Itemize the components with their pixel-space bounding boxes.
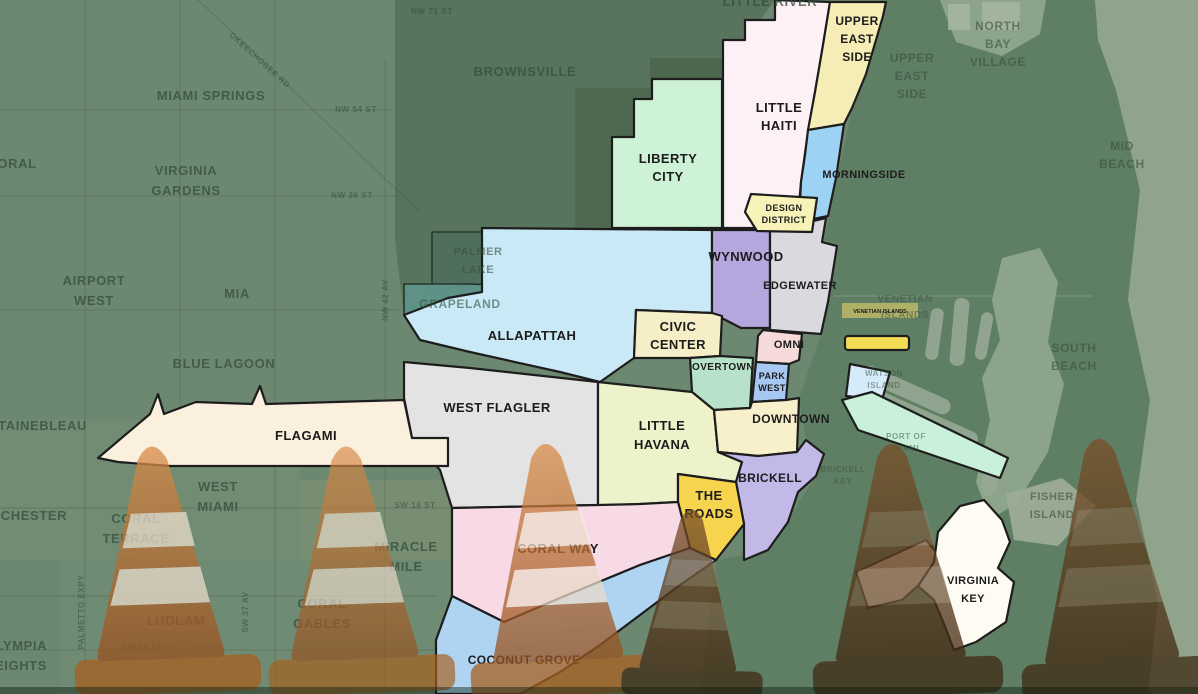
street-nw42av: NW 42 AV	[381, 279, 390, 321]
bg-label-palmer-lake-2: LAKE	[462, 264, 494, 276]
label-liberty-city-2: CITY	[652, 169, 683, 184]
label-virginia-key: VIRGINIA	[947, 575, 999, 587]
bg-label-upper-east-side: UPPER	[890, 51, 934, 65]
bg-label-south-beach: SOUTH	[1052, 341, 1097, 355]
bg-label-north-bay-village-2: BAY	[985, 37, 1011, 51]
bg-label-mid-beach: MID	[1110, 139, 1134, 153]
bottom-edge-shade	[0, 687, 1198, 694]
label-design-district-2: DISTRICT	[762, 215, 807, 225]
bg-label-brickell-key: BRICKELL	[820, 465, 865, 474]
bg-label-west-miami: WEST	[198, 479, 238, 494]
label-morningside: MORNINGSIDE	[822, 169, 905, 181]
nbv-block-1	[948, 4, 970, 30]
bg-label-virginia-gardens: VIRGINIA	[155, 163, 218, 178]
label-upper-east-side: UPPER	[835, 14, 878, 28]
label-little-havana: LITTLE	[639, 418, 685, 433]
bg-label-watson-island: WATSON	[865, 369, 903, 378]
bg-label-mia: MIA	[224, 286, 250, 301]
bg-label-north-bay-village: NORTH	[975, 19, 1021, 33]
district-park-west	[752, 362, 789, 402]
bg-label-grapeland: GRAPELAND	[419, 297, 500, 311]
bg-label-doral: DORAL	[0, 156, 37, 171]
bg-label-airport-west: AIRPORT	[63, 273, 126, 288]
label-upper-east-side-3: SIDE	[842, 50, 872, 64]
label-wynwood: WYNWOOD	[708, 249, 783, 264]
label-allapattah: ALLAPATTAH	[488, 328, 576, 343]
bg-label-upper-east-side-3: SIDE	[897, 87, 927, 101]
bg-label-fisher-island: FISHER	[1030, 491, 1074, 503]
bg-label-upper-east-side-2: EAST	[895, 69, 929, 83]
label-liberty-city: LIBERTY	[639, 151, 697, 166]
bg-label-little-river: LITTLE RIVER	[723, 0, 818, 9]
district-venetian-islands	[845, 336, 909, 350]
bg-label-olympia-heights: OLYMPIA	[0, 638, 47, 653]
bg-label-mid-beach-2: BEACH	[1099, 157, 1145, 171]
label-omni: OMNI	[774, 339, 804, 351]
label-park-west-2: WEST	[758, 383, 786, 393]
bg-label-port-of-miami: PORT OF	[886, 432, 926, 441]
label-the-roads: THE	[695, 488, 722, 503]
label-brickell: BRICKELL	[738, 471, 802, 485]
label-virginia-key-2: KEY	[961, 593, 985, 605]
label-edgewater: EDGEWATER	[763, 280, 837, 292]
bg-label-west-miami-2: MIAMI	[197, 499, 238, 514]
label-park-west: PARK	[759, 371, 786, 381]
street-palmetto: PALMETTO EXPY	[77, 575, 86, 650]
label-venetian-islands: VENETIAN ISLANDS	[853, 309, 907, 315]
bg-label-venetian-islands: VENETIAN	[877, 294, 932, 305]
bg-label-brownsville: BROWNSVILLE	[474, 64, 577, 79]
bg-label-palmer-lake: PALMER	[453, 246, 502, 258]
miami-neighborhood-map: DORAL MIAMI SPRINGS VIRGINIA GARDENS BRO…	[0, 0, 1198, 694]
label-downtown: DOWNTOWN	[752, 412, 830, 426]
bg-label-miami-springs: MIAMI SPRINGS	[157, 88, 265, 103]
label-west-flagler: WEST FLAGLER	[443, 400, 551, 415]
label-flagami: FLAGAMI	[275, 428, 337, 443]
street-nw71: NW 71 ST	[411, 7, 453, 16]
label-civic-center: CIVIC	[660, 319, 697, 334]
street-nw54: NW 54 ST	[335, 105, 377, 114]
street-sw16: SW 16 ST	[394, 501, 435, 510]
label-little-haiti-2: HAITI	[761, 118, 797, 133]
street-sw37av: SW 37 AV	[241, 591, 250, 632]
bg-label-fisher-island-2: ISLAND	[1030, 509, 1075, 521]
label-upper-east-side-2: EAST	[840, 32, 874, 46]
bg-label-blue-lagoon: BLUE LAGOON	[173, 356, 276, 371]
bg-label-south-beach-2: BEACH	[1051, 359, 1097, 373]
label-little-haiti: LITTLE	[756, 100, 802, 115]
bg-label-brickell-key-2: KEY	[834, 477, 852, 486]
bg-label-olympia-heights-2: HEIGHTS	[0, 658, 47, 673]
bg-label-airport-west-2: WEST	[74, 293, 114, 308]
street-nw36: NW 36 ST	[331, 191, 373, 200]
bg-label-watson-island-2: ISLAND	[867, 381, 900, 390]
district-design-district	[745, 194, 817, 232]
bg-label-fontainebleau: FONTAINEBLEAU	[0, 418, 87, 433]
label-overtown: OVERTOWN	[692, 362, 754, 373]
bg-label-westchester: WESTCHESTER	[0, 508, 67, 523]
bg-label-north-bay-village-3: VILLAGE	[970, 55, 1026, 69]
district-wynwood	[712, 230, 770, 328]
bg-label-virginia-gardens-2: GARDENS	[151, 183, 220, 198]
label-civic-center-2: CENTER	[650, 337, 706, 352]
label-design-district: DESIGN	[766, 203, 803, 213]
label-little-havana-2: HAVANA	[634, 437, 690, 452]
